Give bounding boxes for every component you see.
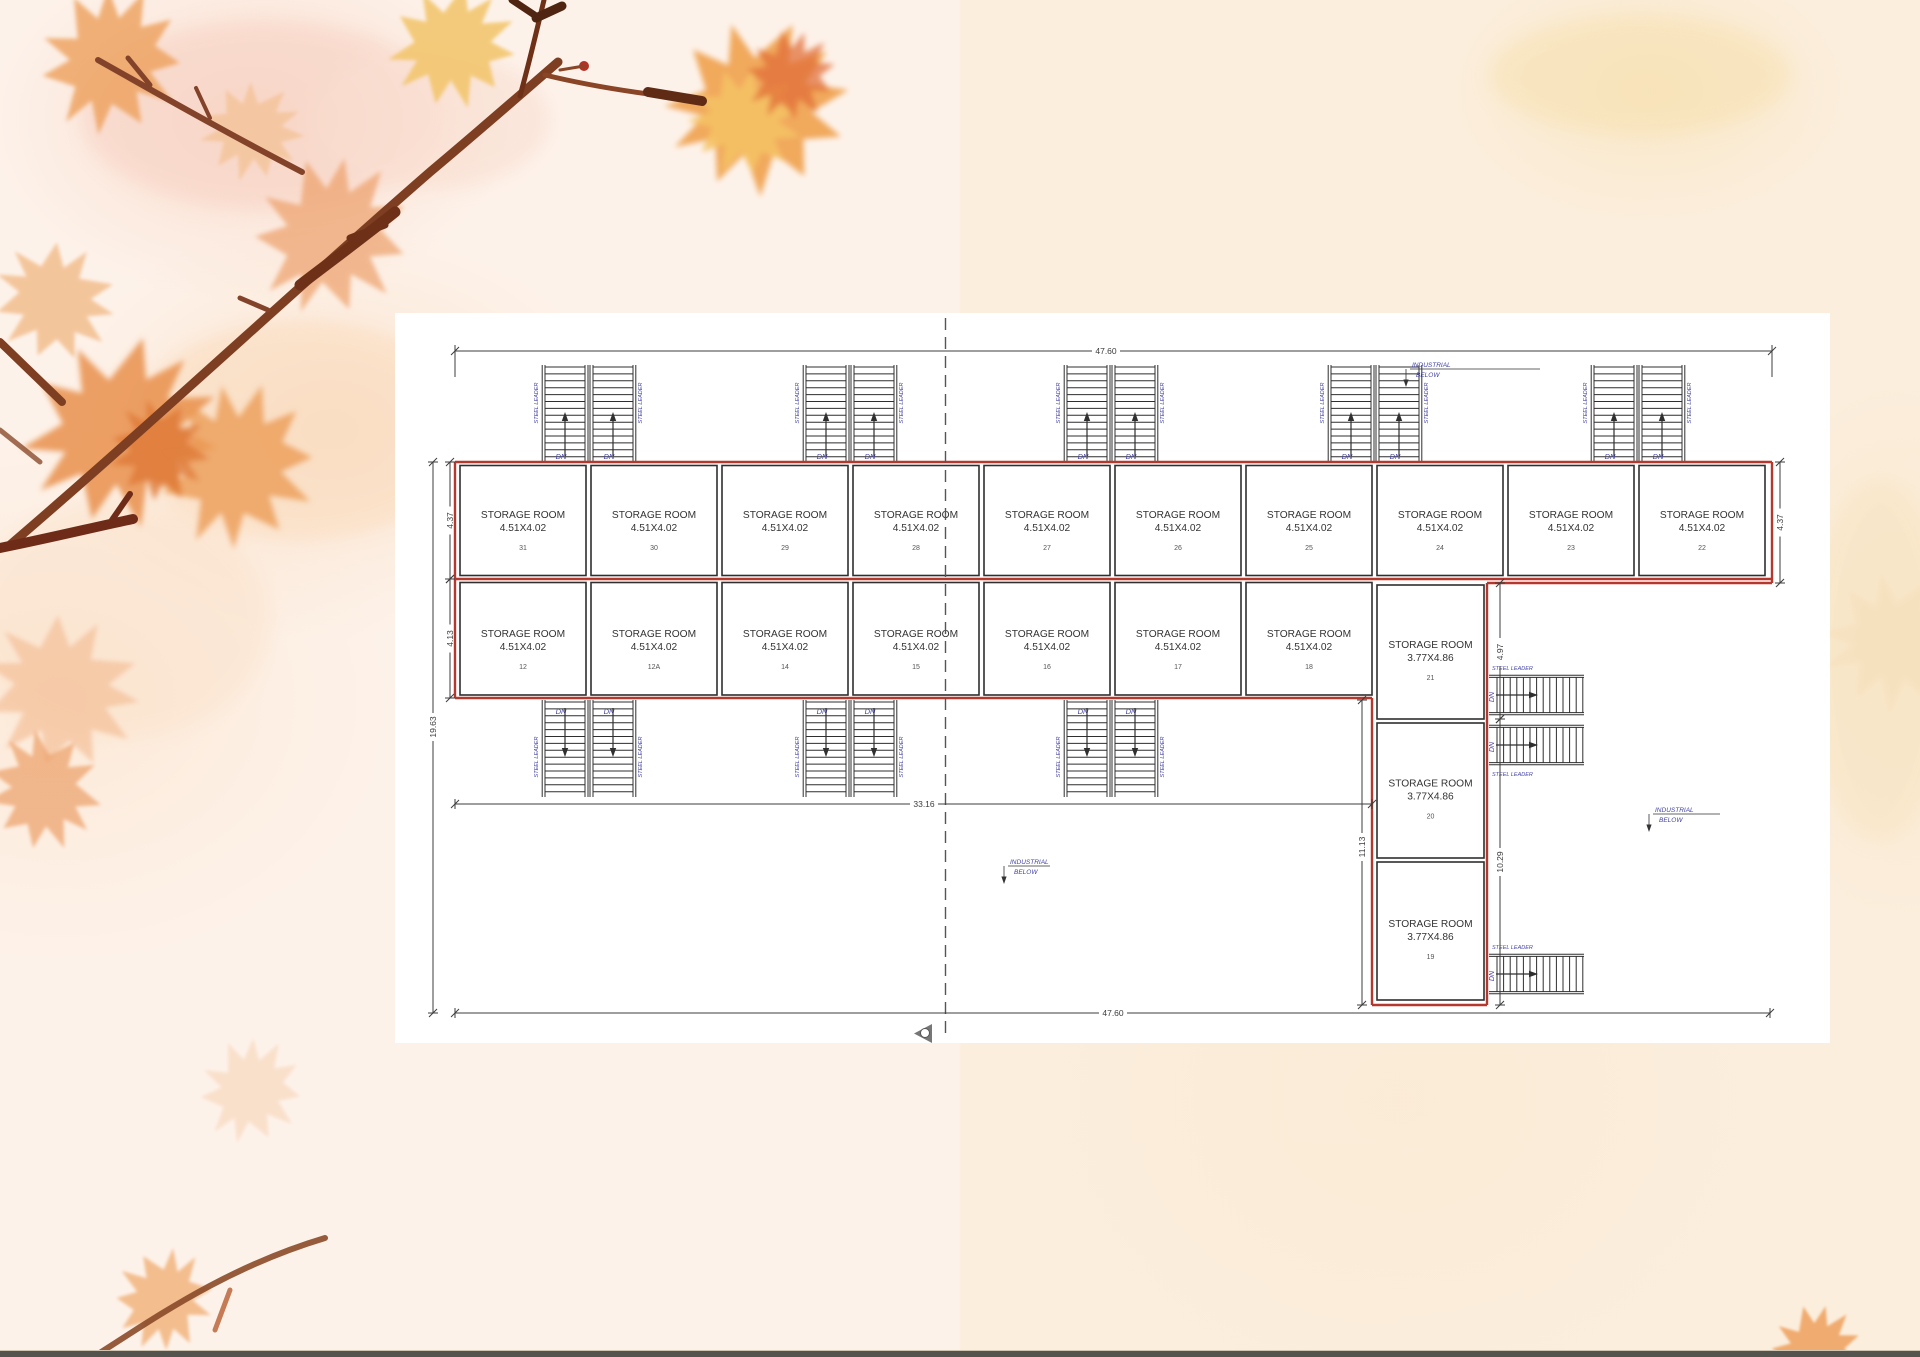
svg-text:STORAGE ROOM: STORAGE ROOM — [1398, 510, 1482, 521]
svg-text:47.60: 47.60 — [1095, 346, 1117, 356]
svg-text:BELOW: BELOW — [1416, 372, 1440, 379]
svg-text:STEEL LEADER: STEEL LEADER — [899, 737, 905, 778]
svg-text:18: 18 — [1305, 664, 1313, 671]
svg-text:4.51X4.02: 4.51X4.02 — [1024, 523, 1071, 534]
svg-text:15: 15 — [912, 664, 920, 671]
svg-text:DN: DN — [556, 707, 567, 716]
svg-text:DN: DN — [865, 707, 876, 716]
svg-text:4.51X4.02: 4.51X4.02 — [1286, 523, 1333, 534]
svg-text:STEEL LEADER: STEEL LEADER — [534, 737, 540, 778]
svg-text:26: 26 — [1174, 545, 1182, 552]
svg-text:STORAGE ROOM: STORAGE ROOM — [743, 510, 827, 521]
svg-text:19.63: 19.63 — [428, 716, 438, 738]
svg-text:STEEL LEADER: STEEL LEADER — [1424, 383, 1430, 424]
svg-text:27: 27 — [1043, 545, 1051, 552]
svg-text:14: 14 — [781, 664, 789, 671]
svg-text:12A: 12A — [648, 664, 661, 671]
svg-text:31: 31 — [519, 545, 527, 552]
svg-text:17: 17 — [1174, 664, 1182, 671]
svg-text:INDUSTRIAL: INDUSTRIAL — [1010, 859, 1049, 866]
svg-text:STEEL LEADER: STEEL LEADER — [638, 737, 644, 778]
svg-text:STORAGE ROOM: STORAGE ROOM — [1005, 629, 1089, 640]
svg-text:4.37: 4.37 — [1775, 514, 1785, 531]
svg-text:STEEL LEADER: STEEL LEADER — [1160, 383, 1166, 424]
svg-text:4.51X4.02: 4.51X4.02 — [893, 523, 940, 534]
svg-text:DN: DN — [556, 452, 567, 461]
svg-text:3.77X4.86: 3.77X4.86 — [1407, 932, 1454, 943]
svg-text:4.51X4.02: 4.51X4.02 — [1548, 523, 1595, 534]
svg-text:STORAGE ROOM: STORAGE ROOM — [1136, 510, 1220, 521]
svg-text:10.29: 10.29 — [1495, 851, 1505, 873]
svg-text:16: 16 — [1043, 664, 1051, 671]
svg-text:4.51X4.02: 4.51X4.02 — [631, 642, 678, 653]
svg-text:STORAGE ROOM: STORAGE ROOM — [1267, 510, 1351, 521]
svg-text:STORAGE ROOM: STORAGE ROOM — [481, 510, 565, 521]
svg-text:4.51X4.02: 4.51X4.02 — [893, 642, 940, 653]
svg-text:STEEL LEADER: STEEL LEADER — [1492, 772, 1533, 778]
svg-text:BELOW: BELOW — [1014, 869, 1038, 876]
svg-text:DN: DN — [1653, 452, 1664, 461]
svg-text:4.13: 4.13 — [445, 630, 455, 647]
svg-text:DN: DN — [817, 707, 828, 716]
svg-text:STEEL LEADER: STEEL LEADER — [1583, 383, 1589, 424]
svg-text:4.51X4.02: 4.51X4.02 — [762, 642, 809, 653]
svg-text:25: 25 — [1305, 545, 1313, 552]
svg-text:24: 24 — [1436, 545, 1444, 552]
svg-text:STORAGE ROOM: STORAGE ROOM — [612, 629, 696, 640]
svg-text:DN: DN — [1489, 970, 1496, 981]
svg-text:30: 30 — [650, 545, 658, 552]
svg-text:DN: DN — [1126, 452, 1137, 461]
svg-text:STEEL LEADER: STEEL LEADER — [1687, 383, 1693, 424]
svg-text:STORAGE ROOM: STORAGE ROOM — [1005, 510, 1089, 521]
svg-text:29: 29 — [781, 545, 789, 552]
svg-text:STEEL LEADER: STEEL LEADER — [1160, 737, 1166, 778]
svg-text:STEEL LEADER: STEEL LEADER — [638, 383, 644, 424]
svg-text:INDUSTRIAL: INDUSTRIAL — [1655, 807, 1694, 814]
svg-text:STORAGE ROOM: STORAGE ROOM — [743, 629, 827, 640]
svg-text:22: 22 — [1698, 545, 1706, 552]
svg-text:47.60: 47.60 — [1102, 1008, 1124, 1018]
svg-text:STEEL LEADER: STEEL LEADER — [795, 383, 801, 424]
svg-text:33.16: 33.16 — [913, 799, 935, 809]
svg-text:4.51X4.02: 4.51X4.02 — [1417, 523, 1464, 534]
svg-text:4.51X4.02: 4.51X4.02 — [500, 642, 547, 653]
svg-text:4.51X4.02: 4.51X4.02 — [1024, 642, 1071, 653]
svg-text:12: 12 — [519, 664, 527, 671]
svg-text:DN: DN — [1078, 452, 1089, 461]
svg-text:STORAGE ROOM: STORAGE ROOM — [1136, 629, 1220, 640]
svg-text:DN: DN — [817, 452, 828, 461]
svg-text:4.51X4.02: 4.51X4.02 — [1679, 523, 1726, 534]
svg-text:DN: DN — [1489, 741, 1496, 752]
svg-text:STORAGE ROOM: STORAGE ROOM — [481, 629, 565, 640]
svg-text:STEEL LEADER: STEEL LEADER — [795, 737, 801, 778]
svg-text:STEEL LEADER: STEEL LEADER — [1056, 737, 1062, 778]
svg-text:INDUSTRIAL: INDUSTRIAL — [1412, 362, 1451, 369]
svg-text:DN: DN — [1489, 691, 1496, 702]
svg-text:STORAGE ROOM: STORAGE ROOM — [1267, 629, 1351, 640]
svg-text:STORAGE ROOM: STORAGE ROOM — [1660, 510, 1744, 521]
svg-text:DN: DN — [604, 707, 615, 716]
svg-text:DN: DN — [1605, 452, 1616, 461]
svg-text:STEEL LEADER: STEEL LEADER — [1320, 383, 1326, 424]
svg-text:28: 28 — [912, 545, 920, 552]
svg-text:4.51X4.02: 4.51X4.02 — [500, 523, 547, 534]
svg-text:BELOW: BELOW — [1659, 817, 1683, 824]
svg-text:STORAGE ROOM: STORAGE ROOM — [612, 510, 696, 521]
svg-text:4.37: 4.37 — [445, 512, 455, 529]
svg-text:4.51X4.02: 4.51X4.02 — [1155, 642, 1202, 653]
svg-text:4.97: 4.97 — [1495, 643, 1505, 660]
svg-text:STEEL LEADER: STEEL LEADER — [1492, 666, 1533, 672]
svg-text:STEEL LEADER: STEEL LEADER — [899, 383, 905, 424]
svg-text:STEEL LEADER: STEEL LEADER — [1492, 945, 1533, 951]
svg-text:4.51X4.02: 4.51X4.02 — [631, 523, 678, 534]
svg-text:DN: DN — [865, 452, 876, 461]
svg-text:STORAGE ROOM: STORAGE ROOM — [1529, 510, 1613, 521]
svg-text:19: 19 — [1427, 954, 1435, 961]
svg-text:STEEL LEADER: STEEL LEADER — [1056, 383, 1062, 424]
svg-text:4.51X4.02: 4.51X4.02 — [1155, 523, 1202, 534]
svg-text:STORAGE ROOM: STORAGE ROOM — [1388, 640, 1472, 651]
svg-text:STORAGE ROOM: STORAGE ROOM — [1388, 919, 1472, 930]
svg-text:DN: DN — [1342, 452, 1353, 461]
svg-text:STORAGE ROOM: STORAGE ROOM — [1388, 779, 1472, 790]
svg-text:DN: DN — [1126, 707, 1137, 716]
svg-text:4.51X4.02: 4.51X4.02 — [762, 523, 809, 534]
svg-text:DN: DN — [604, 452, 615, 461]
svg-text:11.13: 11.13 — [1357, 836, 1367, 857]
svg-text:3.77X4.86: 3.77X4.86 — [1407, 792, 1454, 803]
svg-text:DN: DN — [1390, 452, 1401, 461]
svg-text:21: 21 — [1427, 675, 1435, 682]
svg-text:20: 20 — [1427, 814, 1435, 821]
svg-text:3.77X4.86: 3.77X4.86 — [1407, 653, 1454, 664]
svg-text:DN: DN — [1078, 707, 1089, 716]
svg-text:23: 23 — [1567, 545, 1575, 552]
svg-text:STEEL LEADER: STEEL LEADER — [534, 383, 540, 424]
svg-text:4.51X4.02: 4.51X4.02 — [1286, 642, 1333, 653]
